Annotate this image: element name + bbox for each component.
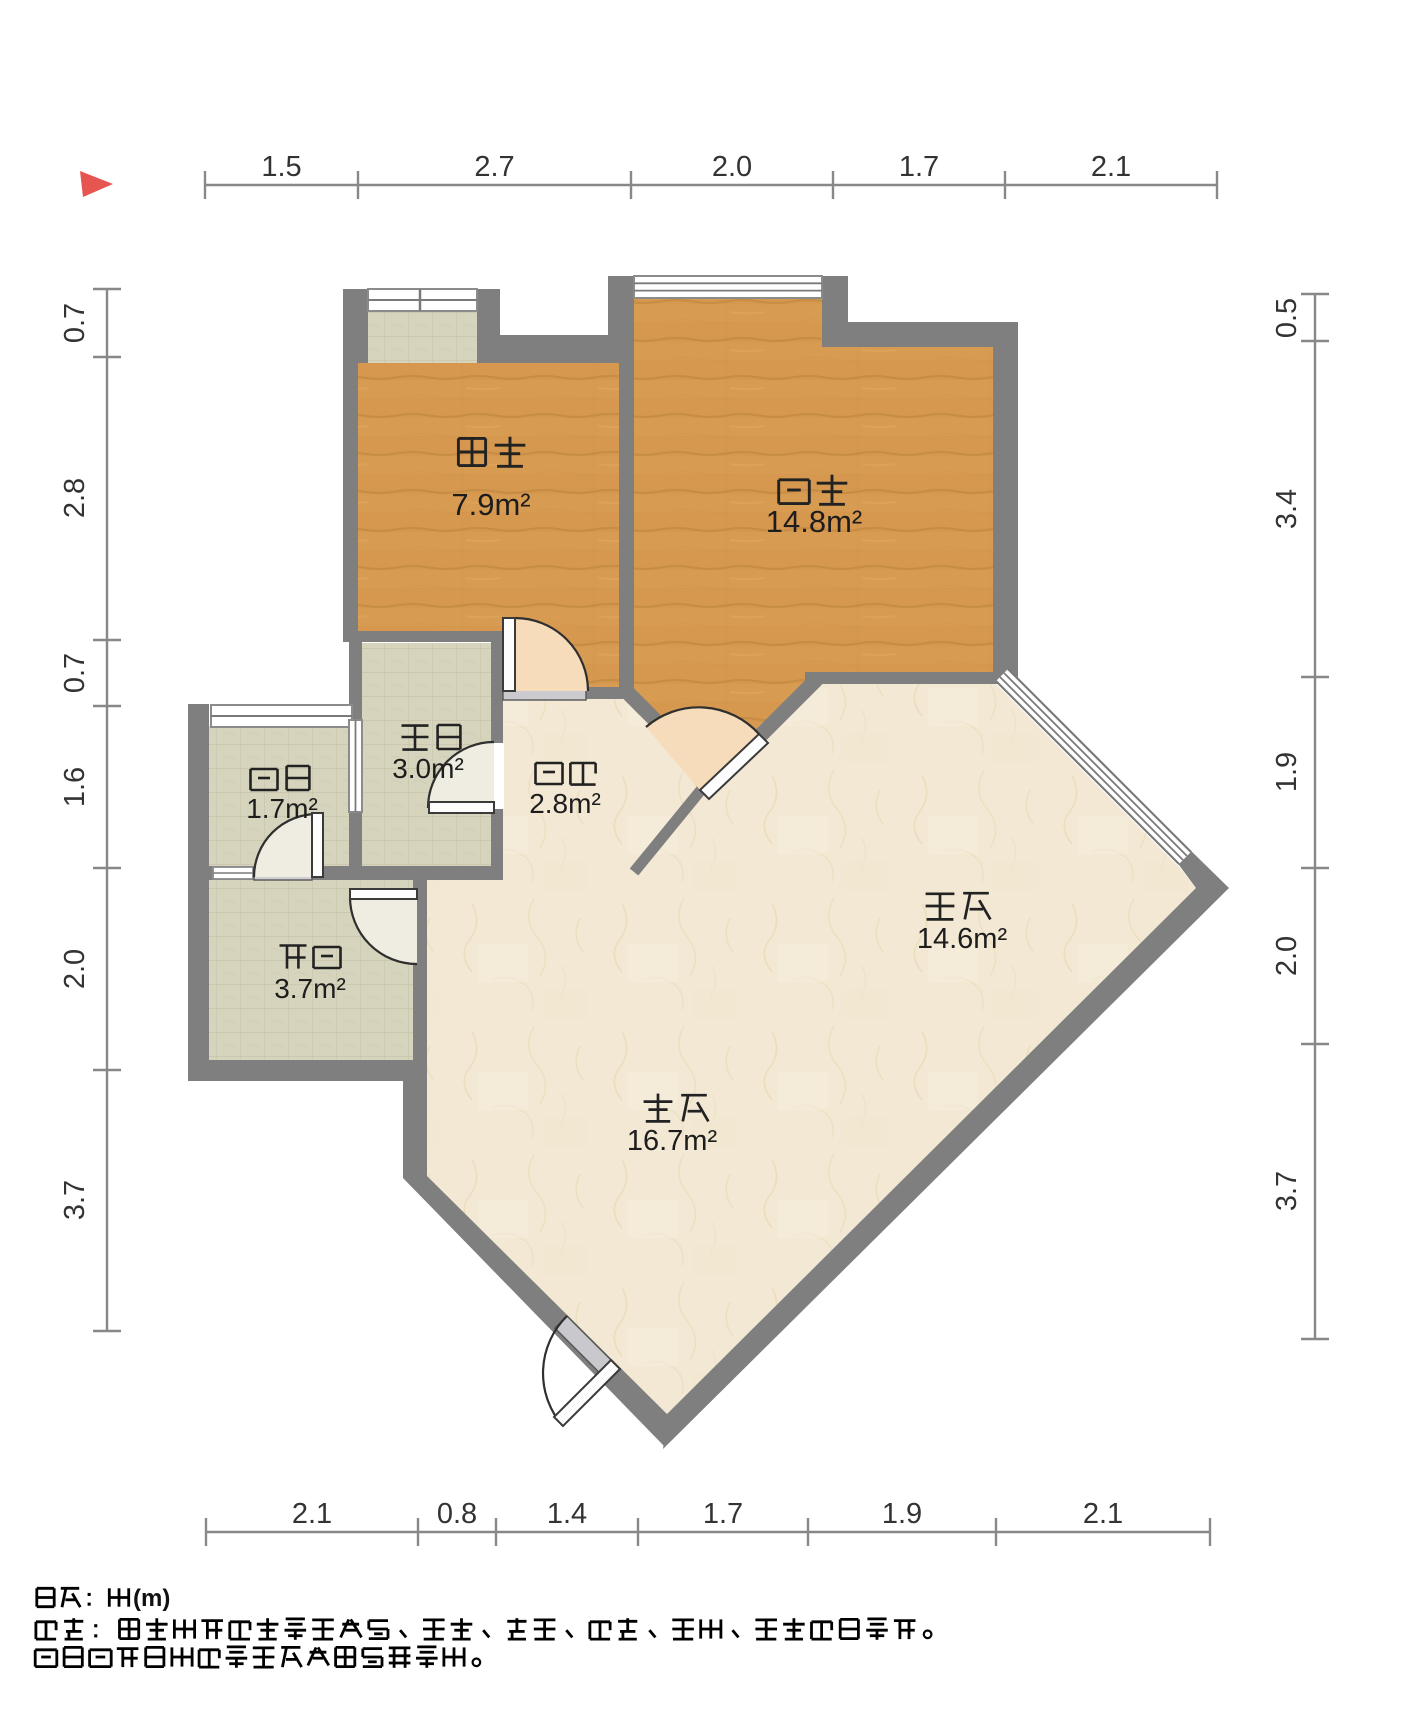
svg-text:0.5: 0.5 xyxy=(1271,298,1303,338)
svg-text:2.0: 2.0 xyxy=(1271,936,1303,976)
svg-text:1.7: 1.7 xyxy=(703,1498,743,1530)
svg-text:3.7m²: 3.7m² xyxy=(274,973,346,1004)
svg-text:3.7: 3.7 xyxy=(59,1180,91,1220)
svg-text:(m): (m) xyxy=(133,1585,170,1612)
svg-text:1.7: 1.7 xyxy=(899,151,939,183)
svg-text:3.7: 3.7 xyxy=(1271,1171,1303,1211)
svg-text:2.7: 2.7 xyxy=(474,151,514,183)
svg-text:1.7m²: 1.7m² xyxy=(246,793,318,824)
svg-text:2.8m²: 2.8m² xyxy=(529,788,601,819)
svg-text:1.9: 1.9 xyxy=(1271,752,1303,792)
svg-text:3.0m²: 3.0m² xyxy=(392,753,464,784)
svg-text:0.8: 0.8 xyxy=(437,1498,477,1530)
svg-text:14.8m²: 14.8m² xyxy=(766,504,862,539)
svg-text:3.4: 3.4 xyxy=(1271,489,1303,529)
svg-text:1.6: 1.6 xyxy=(59,767,91,807)
svg-text:2.1: 2.1 xyxy=(1091,151,1131,183)
svg-text:14.6m²: 14.6m² xyxy=(917,923,1008,955)
svg-text:2.0: 2.0 xyxy=(712,151,752,183)
svg-text:2.1: 2.1 xyxy=(1083,1498,1123,1530)
svg-text:2.0: 2.0 xyxy=(59,949,91,989)
svg-text:1.4: 1.4 xyxy=(547,1498,587,1530)
svg-text:0.7: 0.7 xyxy=(59,653,91,693)
svg-text:1.9: 1.9 xyxy=(882,1498,922,1530)
svg-text:2.1: 2.1 xyxy=(292,1498,332,1530)
svg-text:7.9m²: 7.9m² xyxy=(451,487,530,522)
svg-text:1.5: 1.5 xyxy=(261,151,301,183)
svg-text:0.7: 0.7 xyxy=(59,303,91,343)
svg-text:2.8: 2.8 xyxy=(59,478,91,518)
svg-text:16.7m²: 16.7m² xyxy=(627,1125,718,1157)
